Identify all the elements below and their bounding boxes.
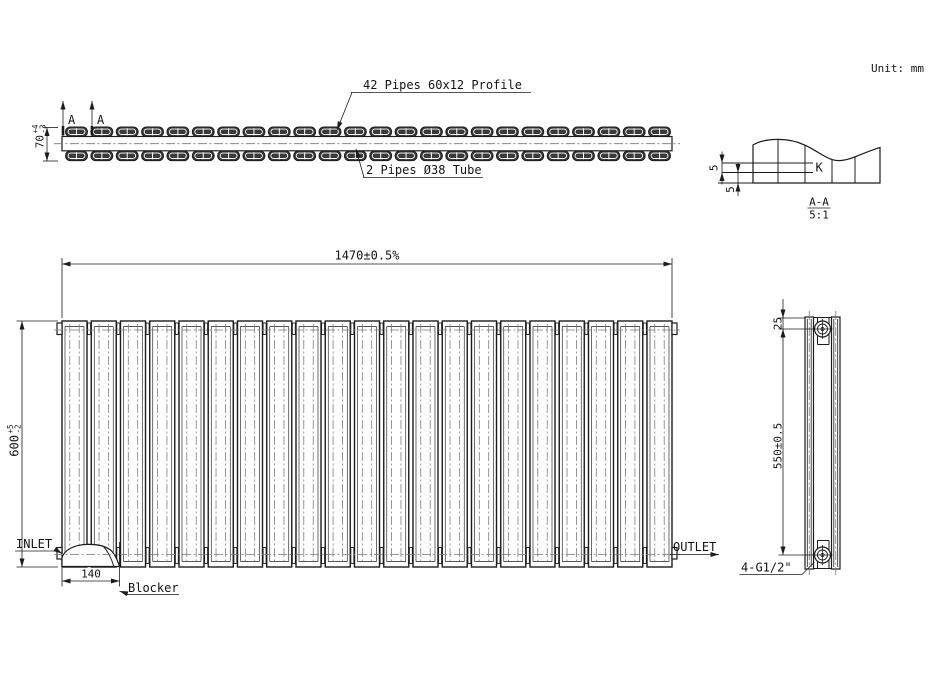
dim-value: 25 — [772, 317, 785, 330]
radiator-panel — [208, 321, 233, 567]
panel-connector — [439, 548, 442, 564]
panel-connector — [380, 323, 383, 335]
radiator-panel — [472, 321, 497, 567]
radiator-panel — [384, 321, 409, 567]
panel-connector — [117, 323, 120, 335]
panel-connector — [526, 548, 529, 564]
section-view-aa: K 5 5 A-A 5:1 — [708, 139, 881, 221]
radiator-technical-drawing: A A 70 +4 -3 42 Pipes 60x12 Profile 2 Pi… — [0, 0, 941, 687]
height-dim-600: 600 +5 -2 — [6, 424, 23, 456]
inlet-label: INLET — [16, 537, 52, 551]
section-title: A-A — [809, 196, 829, 209]
top-view: A A 70 +4 -3 42 Pipes 60x12 Profile 2 Pi… — [31, 78, 680, 178]
dim-tol-minus: -2 — [14, 424, 23, 433]
radiator-panel — [238, 321, 263, 567]
radiator-panel — [296, 321, 321, 567]
panel-connector — [380, 548, 383, 564]
panel-connector — [175, 323, 178, 335]
radiator-panel — [150, 321, 175, 567]
dim-value: 5 — [708, 164, 721, 171]
radiator-panel — [647, 321, 672, 567]
radiator-panel — [325, 321, 350, 567]
tube-label: 2 Pipes Ø38 Tube — [366, 163, 482, 177]
panel-connector — [88, 323, 91, 335]
dim-arrowhead — [664, 262, 673, 267]
radiator-panel — [413, 321, 438, 567]
radiator-panel — [618, 321, 643, 567]
dim-arrowhead — [62, 262, 71, 267]
dim-arrowhead — [20, 559, 25, 568]
dim-value: 600 — [8, 435, 22, 457]
panel-connector — [497, 323, 500, 335]
height-dim-70: 70 +4 -3 — [31, 124, 48, 148]
panel-connector — [409, 548, 412, 564]
unit-label: Unit: mm — [871, 62, 924, 75]
pipes-profile-label: 42 Pipes 60x12 Profile — [363, 78, 522, 92]
radiator-panel — [501, 321, 526, 567]
width-dim: 1470±0.5% — [334, 249, 400, 263]
panel-connector — [439, 323, 442, 335]
dim-value: 70 — [34, 135, 47, 148]
dim-arrowhead — [781, 547, 786, 556]
radiator-panel — [355, 321, 380, 567]
panel-connector — [292, 323, 295, 335]
radiator-panel — [530, 321, 555, 567]
radiator-panel — [121, 321, 146, 567]
panel-connector — [468, 323, 471, 335]
panel-connector — [146, 323, 149, 335]
side-view: 25 550±0.5 4-G1/2" — [740, 299, 841, 575]
dim-arrowhead — [62, 579, 71, 584]
blocker-label: Blocker — [128, 581, 179, 595]
strip-offset-dim: 5 — [724, 186, 737, 193]
section-letter-a2: A — [97, 113, 105, 127]
dim-value: 5 — [724, 186, 737, 193]
panel-connector — [468, 548, 471, 564]
k-strip-label: K — [816, 161, 824, 175]
strip-thickness-dim: 5 — [708, 164, 721, 171]
panel-connector — [205, 548, 208, 564]
dim-value: 550±0.5 — [772, 423, 785, 469]
panel-connector — [526, 323, 529, 335]
panel-connector — [614, 323, 617, 335]
radiator-panel — [559, 321, 584, 567]
panel-connector — [409, 323, 412, 335]
panel-connector — [234, 548, 237, 564]
radiator-panel — [91, 321, 116, 567]
panel-connector — [585, 548, 588, 564]
panel-connector — [322, 548, 325, 564]
panel-connector — [556, 548, 559, 564]
panel-connector — [234, 323, 237, 335]
panel-connector — [175, 548, 178, 564]
connection-spacing-dim: 550±0.5 — [772, 423, 785, 469]
panel-connector — [322, 323, 325, 335]
blocker-width-dim: 140 — [81, 568, 101, 581]
panel-connector — [146, 548, 149, 564]
dim-arrowhead — [736, 164, 741, 173]
thread-label: 4-G1/2" — [741, 561, 792, 575]
radiator-panel — [179, 321, 204, 567]
end-tab — [672, 323, 677, 335]
panel-connector — [263, 323, 266, 335]
front-view: 1470±0.5% 600 +5 -2 140 INLET OUTLET Blo… — [6, 249, 719, 596]
panel-connector — [351, 323, 354, 335]
panel-connector — [643, 548, 646, 564]
dim-arrowhead — [119, 589, 129, 596]
section-scale: 5:1 — [809, 209, 829, 222]
outlet-label: OUTLET — [673, 540, 716, 554]
end-tab — [57, 323, 62, 335]
panel-connector — [614, 548, 617, 564]
panel-connector — [556, 323, 559, 335]
top-offset-dim: 25 — [772, 317, 785, 330]
dim-arrowhead — [781, 310, 786, 319]
panel-connector — [643, 323, 646, 335]
technical-drawing-page: A A 70 +4 -3 42 Pipes 60x12 Profile 2 Pi… — [0, 0, 941, 687]
panel-connector — [351, 548, 354, 564]
panel-connector — [292, 548, 295, 564]
dim-arrowhead — [45, 153, 50, 162]
radiator-panel — [589, 321, 614, 567]
dim-arrowhead — [61, 101, 66, 110]
panel-connector — [497, 548, 500, 564]
dim-arrowhead — [720, 155, 725, 164]
panel-connector — [205, 323, 208, 335]
dim-arrowhead — [720, 173, 725, 182]
panel-connector — [263, 548, 266, 564]
dim-arrowhead — [90, 101, 95, 110]
radiator-panel — [442, 321, 467, 567]
radiator-panels-group — [62, 321, 672, 567]
radiator-panel — [267, 321, 292, 567]
section-letter-a1: A — [68, 113, 76, 127]
radiator-panel — [62, 321, 87, 567]
dim-arrowhead — [111, 579, 120, 584]
dim-arrowhead — [20, 321, 25, 330]
panel-connector — [585, 323, 588, 335]
